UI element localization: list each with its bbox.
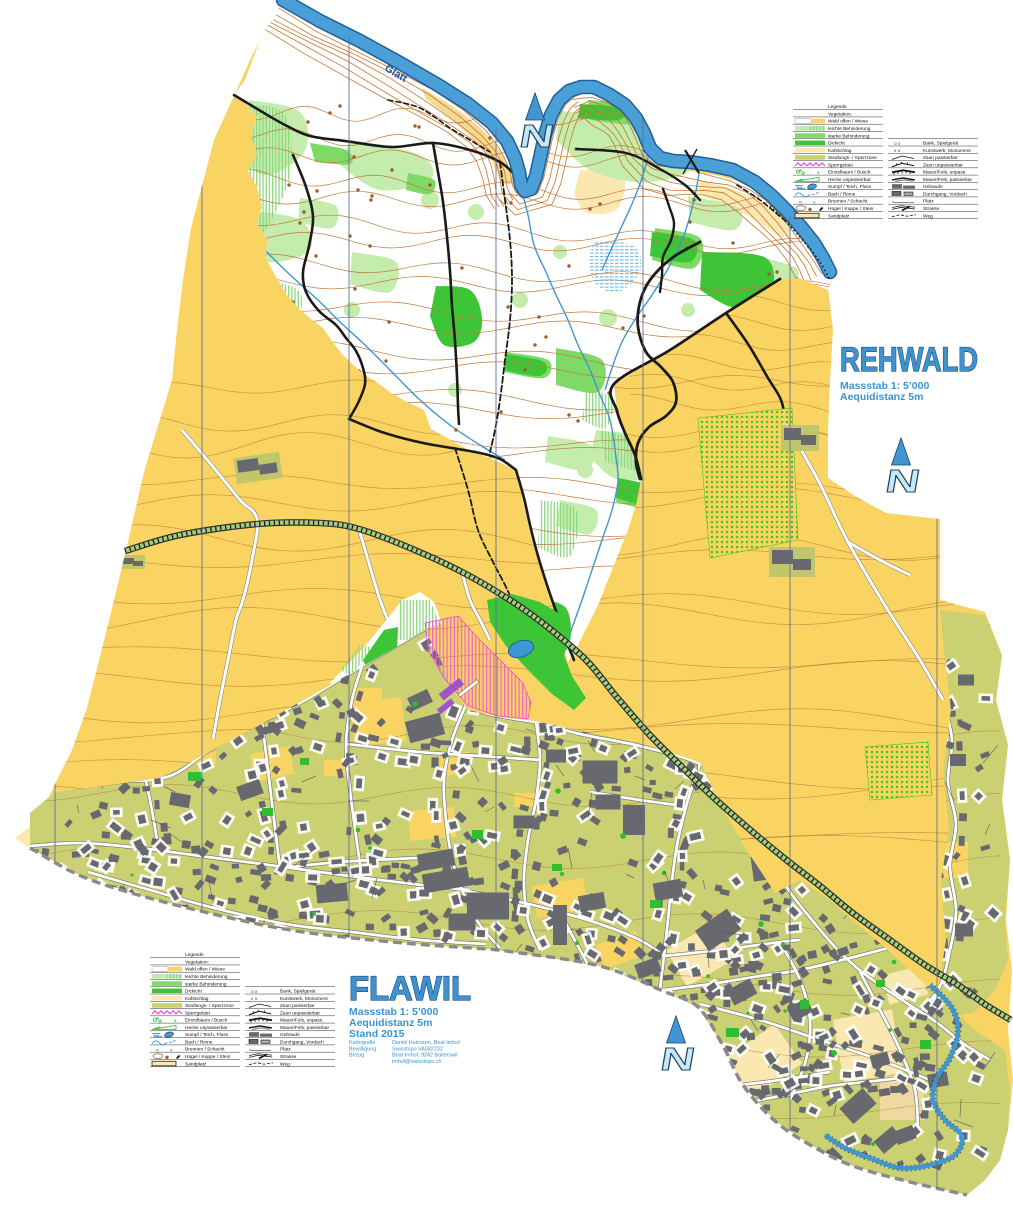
svg-text:x: x (817, 171, 820, 176)
svg-text:Zaun passierbar: Zaun passierbar (280, 1003, 315, 1009)
svg-text:Kunstwerk, Monument: Kunstwerk, Monument (280, 996, 328, 1002)
svg-text:imhof@swisstopo.ch: imhof@swisstopo.ch (392, 1059, 442, 1065)
svg-text:Hecke unpassierbar: Hecke unpassierbar (185, 1025, 228, 1031)
svg-text:Brunnen / Schacht: Brunnen / Schacht (185, 1047, 225, 1053)
svg-text:Zaun passierbar: Zaun passierbar (923, 155, 958, 161)
svg-text:o: o (156, 1048, 159, 1053)
svg-text:Vegetation:: Vegetation: (828, 111, 852, 117)
svg-text:o x: o x (894, 142, 901, 147)
svg-text:Wald offen / Wiese: Wald offen / Wiese (185, 967, 225, 973)
svg-text:starke Behinderung: starke Behinderung (828, 133, 870, 139)
svg-text:N: N (883, 463, 923, 499)
svg-text:Dickicht: Dickicht (828, 141, 845, 147)
svg-text:Weg: Weg (923, 213, 933, 219)
svg-text:Swisstopo VA082232: Swisstopo VA082232 (392, 1046, 443, 1052)
svg-text:Sumpf / Teich, Fluss: Sumpf / Teich, Fluss (828, 184, 872, 190)
svg-text:Hecke unpassierbar: Hecke unpassierbar (828, 177, 871, 183)
svg-text:Vegetation:: Vegetation: (185, 959, 209, 965)
svg-text:Kunstwerk, Monument: Kunstwerk, Monument (923, 148, 971, 154)
svg-text:x: x (813, 200, 816, 205)
svg-text:Aequidistanz 5m: Aequidistanz 5m (840, 391, 923, 403)
svg-text:Hügel / Kuppe / Stein: Hügel / Kuppe / Stein (828, 206, 874, 212)
svg-text:Kahlschlag: Kahlschlag (828, 148, 852, 154)
svg-text:Strasse: Strasse (280, 1054, 297, 1060)
svg-text:Stand 2015: Stand 2015 (349, 1028, 405, 1040)
svg-text:N: N (517, 118, 557, 154)
svg-text:Zaun unpassierbar: Zaun unpassierbar (923, 162, 963, 168)
svg-text:Gebäude: Gebäude (280, 1032, 300, 1038)
svg-text:N: N (658, 1041, 698, 1077)
svg-text:x: x (170, 1048, 173, 1053)
svg-text:Hügel / Kuppe / Stein: Hügel / Kuppe / Stein (185, 1054, 231, 1060)
svg-text:Durchgang, Vordach: Durchgang, Vordach (923, 191, 967, 197)
svg-text:o: o (799, 200, 802, 205)
svg-text:Legende: Legende (185, 952, 204, 958)
svg-text:Sperrgebiet: Sperrgebiet (828, 162, 853, 168)
svg-text:Platz: Platz (280, 1047, 291, 1053)
svg-text:Beat Imhof, 9242 Balterswil: Beat Imhof, 9242 Balterswil (392, 1053, 458, 1059)
svg-text:Mauer/Fels, passierbar: Mauer/Fels, passierbar (280, 1025, 329, 1031)
svg-text:Einzelbaum / Busch: Einzelbaum / Busch (185, 1018, 228, 1024)
svg-text:Siedlungs- / Sperrzone: Siedlungs- / Sperrzone (828, 155, 877, 161)
svg-text:Sperrgebiet: Sperrgebiet (185, 1010, 210, 1016)
svg-text:Sumpf / Teich, Fluss: Sumpf / Teich, Fluss (185, 1032, 229, 1038)
svg-text:Brunnen / Schacht: Brunnen / Schacht (828, 199, 868, 205)
svg-text:Durchgang, Vordach: Durchgang, Vordach (280, 1039, 324, 1045)
svg-text:Strasse: Strasse (923, 206, 940, 212)
svg-text:Kartografie: Kartografie (349, 1040, 375, 1046)
svg-text:Mauer/Fels, unpass.: Mauer/Fels, unpass. (280, 1018, 323, 1024)
svg-text:Bezug: Bezug (349, 1053, 364, 1059)
svg-text:x o: x o (251, 997, 258, 1002)
svg-text:Gebäude: Gebäude (923, 184, 943, 190)
svg-text:Sandplatz: Sandplatz (828, 213, 850, 219)
svg-text:Bank, Spielgerät: Bank, Spielgerät (923, 141, 959, 147)
svg-text:Bach / Rinne: Bach / Rinne (828, 191, 856, 197)
svg-text:Daniel Hutmann, Beat Imhof: Daniel Hutmann, Beat Imhof (392, 1040, 460, 1046)
svg-text:Bewilligung: Bewilligung (349, 1046, 376, 1052)
svg-text:Zaun unpassierbar: Zaun unpassierbar (280, 1010, 320, 1016)
svg-text:Wald offen / Wiese: Wald offen / Wiese (828, 119, 868, 125)
svg-text:Platz: Platz (923, 199, 934, 205)
svg-text:Weg: Weg (280, 1061, 290, 1067)
svg-text:starke Behinderung: starke Behinderung (185, 981, 227, 987)
svg-text:leichte Behinderung: leichte Behinderung (185, 974, 228, 980)
svg-text:REHWALD: REHWALD (840, 341, 978, 379)
svg-text:Mauer/Fels, passierbar: Mauer/Fels, passierbar (923, 177, 972, 183)
svg-text:leichte Behinderung: leichte Behinderung (828, 126, 871, 132)
svg-text:Kahlschlag: Kahlschlag (185, 996, 209, 1002)
svg-text:Bank, Spielgerät: Bank, Spielgerät (280, 989, 316, 995)
svg-text:Siedlungs- / Sperrzone: Siedlungs- / Sperrzone (185, 1003, 234, 1009)
svg-text:Legende: Legende (828, 104, 847, 110)
svg-text:x o: x o (894, 149, 901, 154)
svg-text:o x: o x (251, 990, 258, 995)
svg-text:Bach / Rinne: Bach / Rinne (185, 1039, 213, 1045)
svg-text:Mauer/Fels, unpass.: Mauer/Fels, unpass. (923, 170, 966, 176)
svg-text:Dickicht: Dickicht (185, 989, 202, 995)
svg-text:Sandplatz: Sandplatz (185, 1061, 207, 1067)
svg-text:FLAWIL: FLAWIL (349, 970, 471, 1008)
svg-text:Einzelbaum / Busch: Einzelbaum / Busch (828, 170, 871, 176)
svg-text:x: x (174, 1019, 177, 1024)
